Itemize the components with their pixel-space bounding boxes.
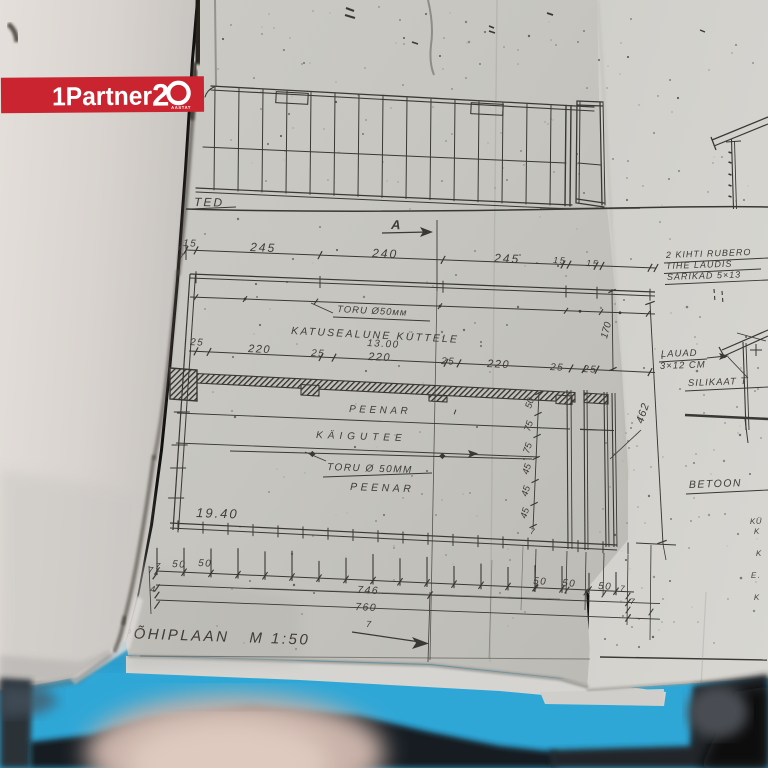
svg-text:13.00: 13.00 bbox=[367, 338, 400, 351]
svg-text:BETOON: BETOON bbox=[689, 477, 743, 491]
svg-text:3×12 CM: 3×12 CM bbox=[660, 359, 706, 372]
svg-text:7: 7 bbox=[620, 584, 626, 593]
svg-text:25: 25 bbox=[440, 356, 456, 368]
svg-text:PEENAR: PEENAR bbox=[350, 481, 415, 495]
svg-text:746: 746 bbox=[357, 584, 380, 597]
svg-text:220: 220 bbox=[486, 358, 510, 371]
svg-text:25: 25 bbox=[549, 362, 565, 374]
svg-text:19.40: 19.40 bbox=[196, 505, 239, 521]
svg-text:LAUAD: LAUAD bbox=[661, 348, 698, 360]
svg-text:KÜ: KÜ bbox=[750, 517, 762, 526]
svg-text:PEENAR: PEENAR bbox=[349, 404, 411, 417]
svg-text:4: 4 bbox=[150, 584, 157, 594]
svg-text:A: A bbox=[390, 217, 402, 232]
svg-text:7: 7 bbox=[155, 561, 162, 571]
svg-text:240: 240 bbox=[371, 246, 399, 261]
svg-text:7: 7 bbox=[630, 597, 636, 606]
svg-text:220: 220 bbox=[247, 343, 271, 356]
svg-text:7: 7 bbox=[530, 527, 536, 536]
svg-text:K: K bbox=[754, 527, 761, 536]
svg-text:15: 15 bbox=[586, 258, 600, 269]
svg-text:50: 50 bbox=[198, 558, 213, 570]
svg-text:25: 25 bbox=[310, 348, 326, 360]
svg-text:1Partner: 1Partner bbox=[52, 81, 152, 112]
svg-text:50: 50 bbox=[172, 559, 187, 571]
svg-text:15: 15 bbox=[183, 238, 198, 250]
svg-text:SILIKAAT T: SILIKAAT T bbox=[688, 376, 748, 389]
svg-text:7: 7 bbox=[366, 619, 373, 629]
svg-text:E.: E. bbox=[751, 571, 762, 580]
svg-text:245: 245 bbox=[493, 251, 521, 266]
svg-text:245: 245 bbox=[249, 240, 277, 255]
svg-text:K: K bbox=[754, 593, 761, 602]
svg-text:15: 15 bbox=[553, 255, 567, 266]
svg-text:25: 25 bbox=[582, 364, 598, 376]
svg-text:AASTAT: AASTAT bbox=[171, 105, 191, 110]
svg-text:220: 220 bbox=[367, 351, 391, 364]
svg-text:50: 50 bbox=[598, 581, 613, 593]
svg-text:760: 760 bbox=[355, 601, 378, 614]
svg-text:50: 50 bbox=[562, 578, 577, 590]
svg-text:K: K bbox=[756, 549, 763, 558]
